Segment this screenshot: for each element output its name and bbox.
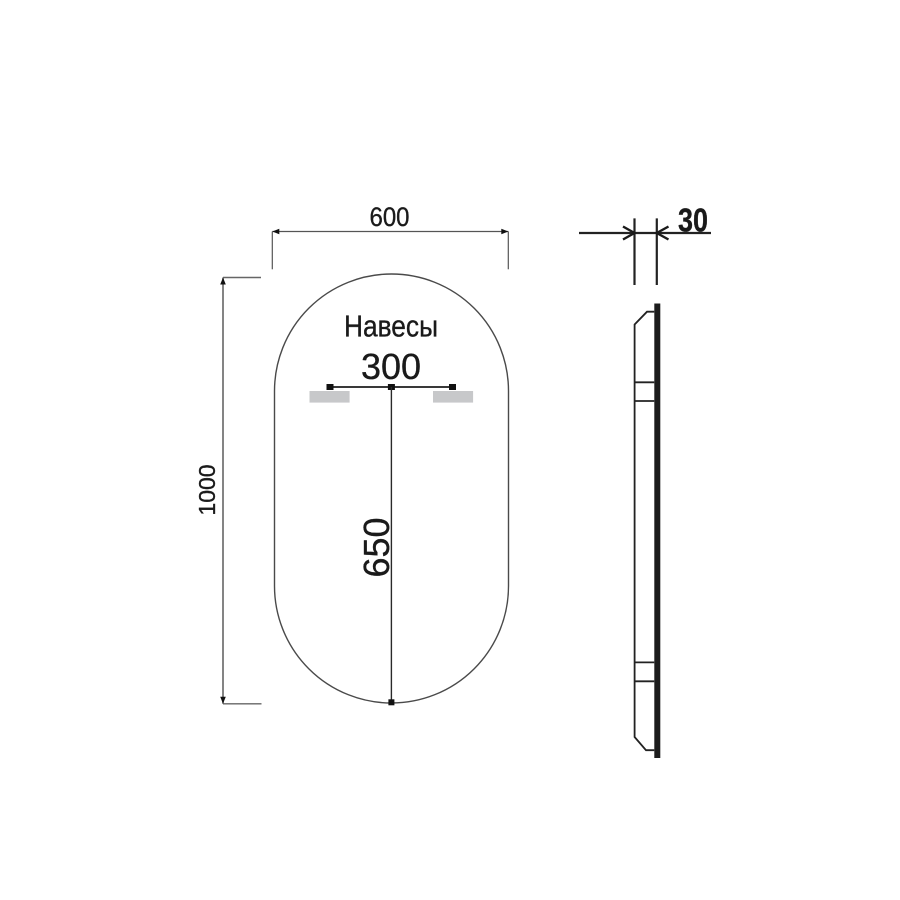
svg-text:Навесы: Навесы — [344, 309, 438, 344]
svg-text:1000: 1000 — [194, 464, 220, 515]
svg-text:300: 300 — [361, 346, 421, 387]
svg-text:30: 30 — [678, 202, 708, 239]
svg-text:650: 650 — [356, 517, 397, 577]
svg-text:600: 600 — [370, 202, 410, 232]
